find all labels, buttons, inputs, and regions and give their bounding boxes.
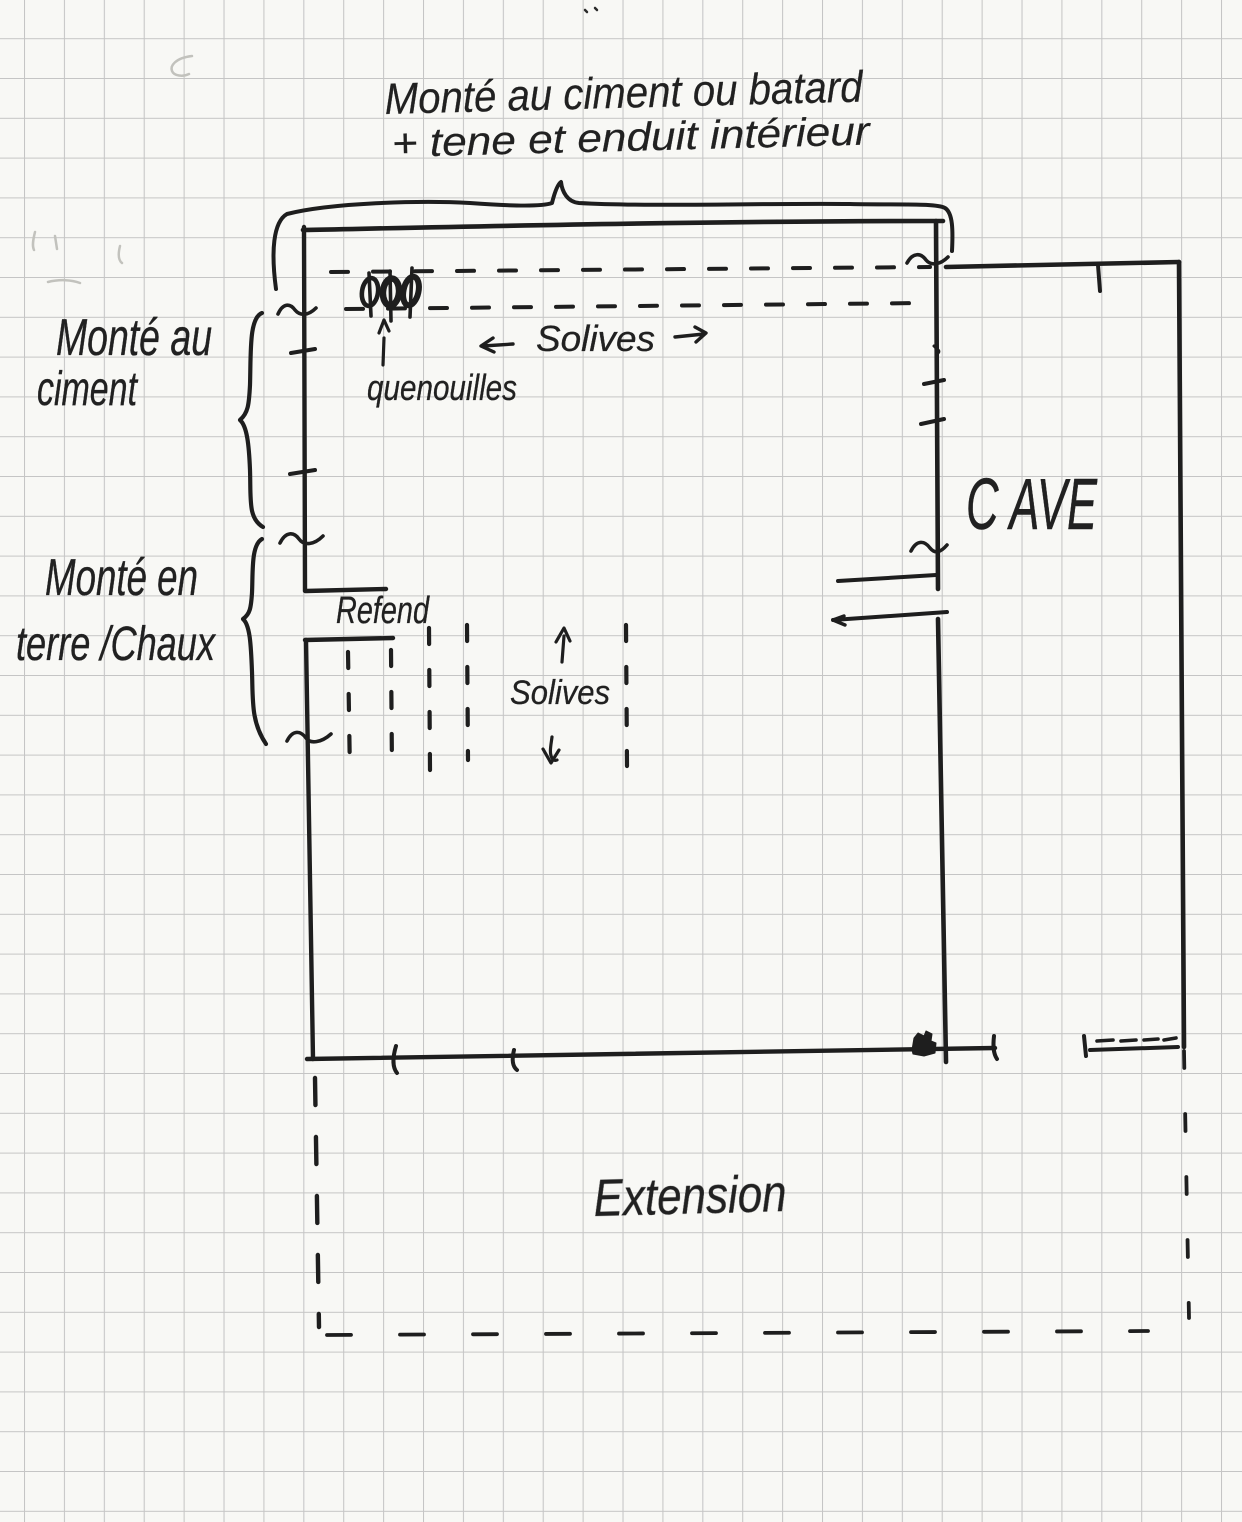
svg-text:quenouilles: quenouilles: [367, 367, 517, 408]
svg-text:C AVE: C AVE: [966, 465, 1098, 545]
svg-text:ciment: ciment: [37, 363, 138, 416]
svg-text:Extension: Extension: [593, 1165, 787, 1228]
svg-text:Monté en: Monté en: [45, 549, 198, 607]
svg-text:terre /Chaux: terre /Chaux: [16, 618, 217, 671]
svg-text:Monté au: Monté au: [56, 309, 212, 367]
svg-text:Refend: Refend: [336, 590, 430, 632]
svg-text:Solives: Solives: [536, 318, 655, 359]
svg-text:Solives: Solives: [510, 674, 610, 712]
